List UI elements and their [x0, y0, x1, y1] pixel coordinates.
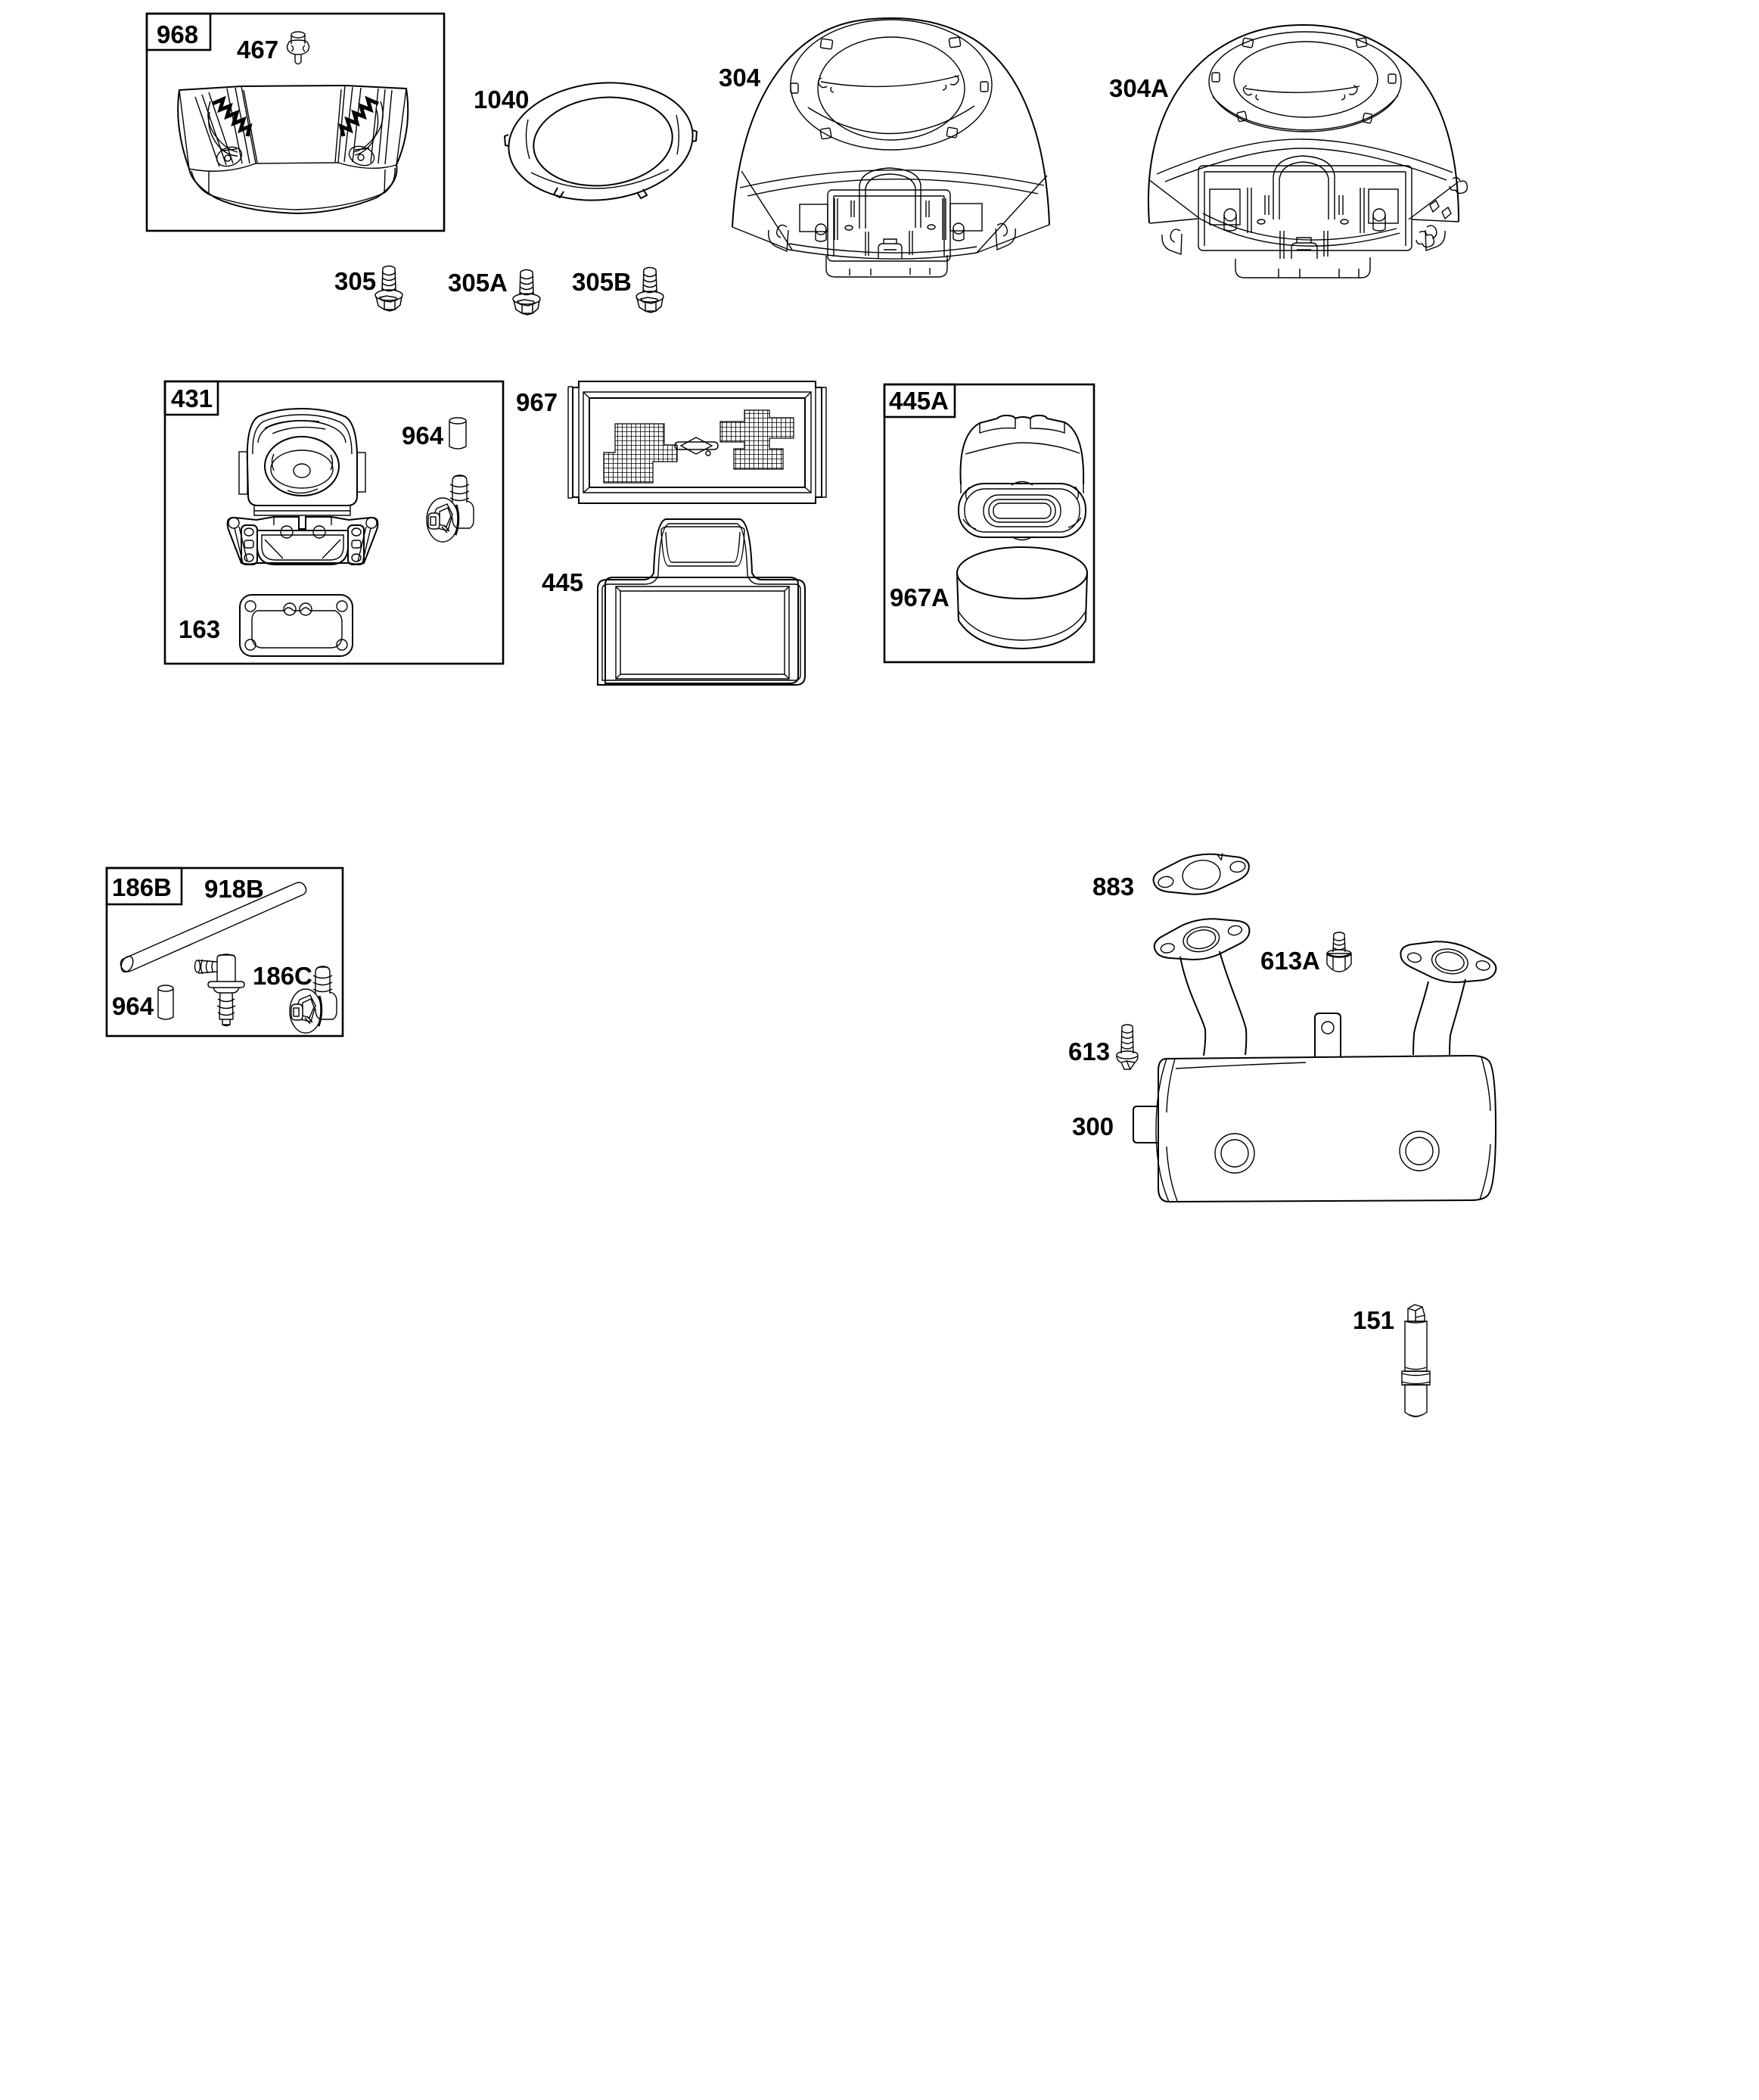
svg-text:186C: 186C: [253, 962, 312, 990]
svg-text:467: 467: [237, 36, 278, 64]
svg-text:304: 304: [719, 64, 761, 92]
svg-text:883: 883: [1092, 873, 1134, 901]
svg-text:305: 305: [334, 267, 376, 295]
svg-text:304A: 304A: [1109, 74, 1169, 102]
svg-text:151: 151: [1353, 1306, 1394, 1334]
svg-text:163: 163: [179, 615, 220, 643]
svg-text:613A: 613A: [1260, 947, 1320, 975]
svg-text:186B: 186B: [112, 873, 172, 901]
svg-text:964: 964: [112, 992, 154, 1020]
svg-text:431: 431: [171, 384, 213, 412]
svg-text:1040: 1040: [474, 86, 529, 114]
svg-text:300: 300: [1072, 1112, 1114, 1140]
svg-text:918B: 918B: [204, 875, 264, 903]
svg-text:964: 964: [402, 422, 444, 450]
svg-text:967A: 967A: [890, 583, 949, 611]
svg-text:305B: 305B: [572, 268, 632, 296]
svg-text:445: 445: [542, 568, 583, 596]
svg-text:445A: 445A: [889, 387, 949, 415]
svg-text:305A: 305A: [448, 269, 508, 297]
svg-text:613: 613: [1068, 1038, 1110, 1066]
svg-text:968: 968: [157, 20, 198, 48]
svg-text:967: 967: [516, 388, 558, 416]
